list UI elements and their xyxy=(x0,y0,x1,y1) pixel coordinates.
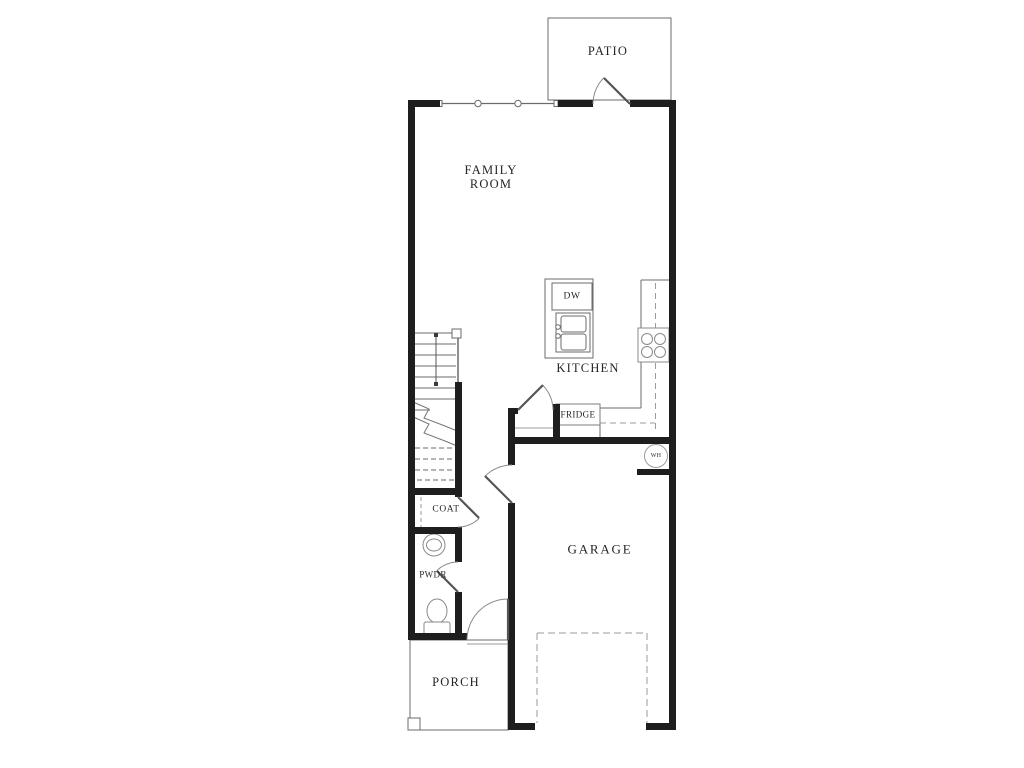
garage-entry-door xyxy=(485,465,512,503)
garage-label: GARAGE xyxy=(568,543,633,556)
toilet xyxy=(424,599,450,637)
wall-powder-right-lower xyxy=(455,592,462,640)
walls xyxy=(408,100,676,730)
coat-closet-label: COAT xyxy=(432,505,459,515)
wall-coat-bottom xyxy=(408,527,462,534)
powder-room-label: PWDR xyxy=(419,571,447,580)
wall-hall-door-right-stub xyxy=(553,404,560,437)
wall-hall-door-left-jamb xyxy=(508,408,518,414)
wall-left xyxy=(408,100,415,640)
wall-garage-top xyxy=(508,437,676,444)
wall-right xyxy=(669,100,676,730)
wall-water-heater-stub xyxy=(637,469,669,475)
hall-to-kitchen-door xyxy=(518,385,553,410)
porch-label: PORCH xyxy=(432,676,480,689)
dishwasher-label: DW xyxy=(563,292,580,302)
porch-column xyxy=(408,718,420,730)
patio-outline xyxy=(548,18,671,100)
family-room-label-line1: FAMILY xyxy=(465,164,518,177)
wall-entry-bottom xyxy=(408,633,467,640)
garage-door-dashed-outline xyxy=(537,633,647,723)
stairs-break-line xyxy=(411,401,462,448)
kitchen-sink xyxy=(556,313,590,352)
family-room-window xyxy=(438,100,558,106)
newel-post xyxy=(452,329,461,338)
front-door xyxy=(467,599,508,640)
water-heater-label: WH xyxy=(651,453,661,459)
floor-plan-canvas: PATIO FAMILY ROOM KITCHEN GARAGE PORCH C… xyxy=(0,0,1024,768)
cooktop xyxy=(638,328,669,362)
wall-stairs-right xyxy=(455,382,462,497)
coat-closet-door xyxy=(458,497,479,527)
wall-garage-bottom-left xyxy=(508,723,535,730)
wall-stairs-bottom xyxy=(408,488,462,495)
refrigerator-label: FRIDGE xyxy=(561,411,596,420)
stairs xyxy=(409,333,456,480)
family-room-label-line2: ROOM xyxy=(470,178,512,191)
wall-hall-left xyxy=(508,408,515,465)
kitchen-label: KITCHEN xyxy=(556,362,619,375)
patio-label: PATIO xyxy=(588,45,628,58)
wall-garage-bottom-right xyxy=(646,723,676,730)
wall-top-mid xyxy=(558,100,593,107)
floor-plan-drawing xyxy=(0,0,1024,768)
powder-sink xyxy=(423,534,445,556)
